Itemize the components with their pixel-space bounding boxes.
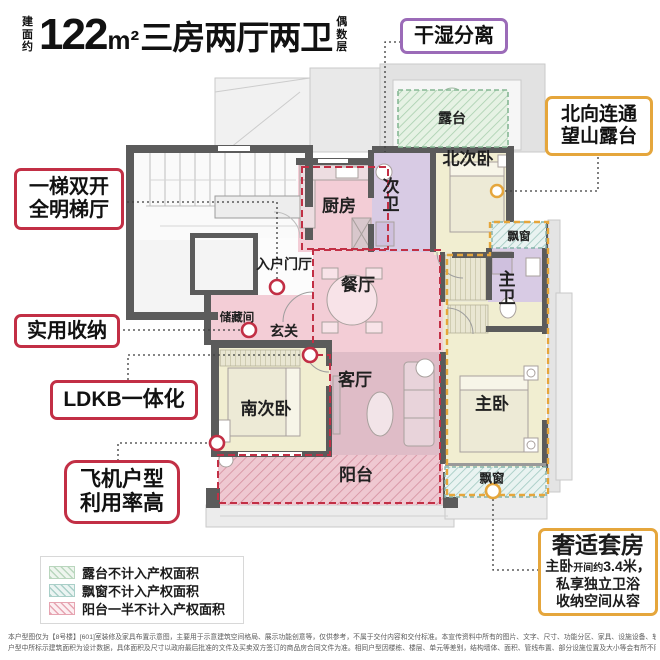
legend-label-terrace: 露台不计入产权面积 bbox=[82, 563, 199, 582]
legend-swatch-bay-window bbox=[49, 584, 75, 597]
callout-north-terrace-line1: 北向连通 bbox=[561, 104, 637, 126]
legend-row-balcony: 阳台一半不计入产权面积 bbox=[49, 599, 235, 617]
callout-suite-line1: 主卧开间约3.4米， bbox=[545, 558, 650, 576]
disclaimer-line1: 本户型图仅为【8号楼】[601]室装修及家具布置示意图，主要用于示意建筑空间格局… bbox=[8, 633, 656, 644]
callout-north-terrace-line2: 望山露台 bbox=[561, 126, 637, 148]
room-label-kitchen: 厨房 bbox=[322, 192, 356, 217]
legend-row-terrace: 露台不计入产权面积 bbox=[49, 563, 235, 581]
callout-stair-line2: 全明梯厅 bbox=[29, 199, 109, 222]
legend-label-balcony: 阳台一半不计入产权面积 bbox=[82, 599, 225, 618]
callout-plane-line2: 利用率高 bbox=[80, 492, 164, 516]
callout-dry-wet-label: 干湿分离 bbox=[414, 25, 494, 48]
callout-suite-line3: 收纳空间从容 bbox=[556, 593, 640, 611]
room-label-bath-master: 主卫 bbox=[498, 271, 516, 307]
callout-storage: 实用收纳 bbox=[14, 314, 120, 348]
disclaimer: 本户型图仅为【8号楼】[601]室装修及家具布置示意图，主要用于示意建筑空间格局… bbox=[8, 633, 656, 655]
room-label-balcony: 阳台 bbox=[339, 461, 373, 486]
callout-suite: 奢适套房 主卧开间约3.4米， 私享独立卫浴 收纳空间从容 bbox=[538, 528, 658, 616]
room-label-terrace: 露台 bbox=[438, 108, 466, 128]
legend-label-bay-window: 飘窗不计入产权面积 bbox=[82, 581, 199, 600]
balcony-area bbox=[218, 455, 443, 505]
room-label-foyer: 玄关 bbox=[270, 321, 298, 341]
callout-stair-line1: 一梯双开 bbox=[29, 176, 109, 199]
room-label-bedroom-south: 南次卧 bbox=[241, 395, 292, 420]
callout-suite-title: 奢适套房 bbox=[552, 533, 644, 558]
callout-suite-line1a: 主卧 bbox=[545, 558, 573, 574]
legend: 露台不计入产权面积 飘窗不计入产权面积 阳台一半不计入产权面积 bbox=[40, 556, 244, 624]
legend-swatch-balcony bbox=[49, 602, 75, 615]
room-label-bath-second: 次卫 bbox=[382, 178, 400, 214]
callout-ldkb-label: LDKB一体化 bbox=[63, 388, 184, 412]
floorplan-page: { "title": { "prefix_vertical": "建面约", "… bbox=[0, 0, 660, 660]
room-label-bay-window-right: 飘窗 bbox=[508, 228, 531, 244]
legend-swatch-terrace bbox=[49, 566, 75, 579]
room-label-entry-hall: 入户门厅 bbox=[256, 254, 312, 274]
disclaimer-line2: 户型中所标示建筑面积为设计数据，具体面积及尺寸以政府最后批准的文件及买卖双方签订… bbox=[8, 644, 656, 655]
room-label-bedroom-master: 主卧 bbox=[475, 390, 509, 415]
room-label-bay-window-bottom: 飘窗 bbox=[479, 468, 504, 487]
callout-stair: 一梯双开 全明梯厅 bbox=[14, 168, 124, 230]
legend-row-bay-window: 飘窗不计入产权面积 bbox=[49, 581, 235, 599]
room-label-living: 客厅 bbox=[338, 366, 372, 391]
callout-north-terrace: 北向连通 望山露台 bbox=[545, 96, 653, 156]
callout-ldkb: LDKB一体化 bbox=[50, 380, 198, 420]
callout-plane-line1: 飞机户型 bbox=[80, 468, 164, 492]
callout-suite-line1c: 3.4米， bbox=[603, 558, 650, 574]
callout-suite-line1b: 开间约 bbox=[573, 563, 603, 574]
callout-suite-line2: 私享独立卫浴 bbox=[556, 576, 640, 594]
room-label-dining: 餐厅 bbox=[341, 271, 375, 296]
room-label-storage-room: 储藏间 bbox=[220, 309, 255, 325]
callout-storage-label: 实用收纳 bbox=[27, 320, 107, 343]
room-label-bedroom-north: 北次卧 bbox=[443, 145, 494, 170]
callout-dry-wet: 干湿分离 bbox=[400, 18, 508, 54]
callout-plane: 飞机户型 利用率高 bbox=[64, 460, 180, 524]
